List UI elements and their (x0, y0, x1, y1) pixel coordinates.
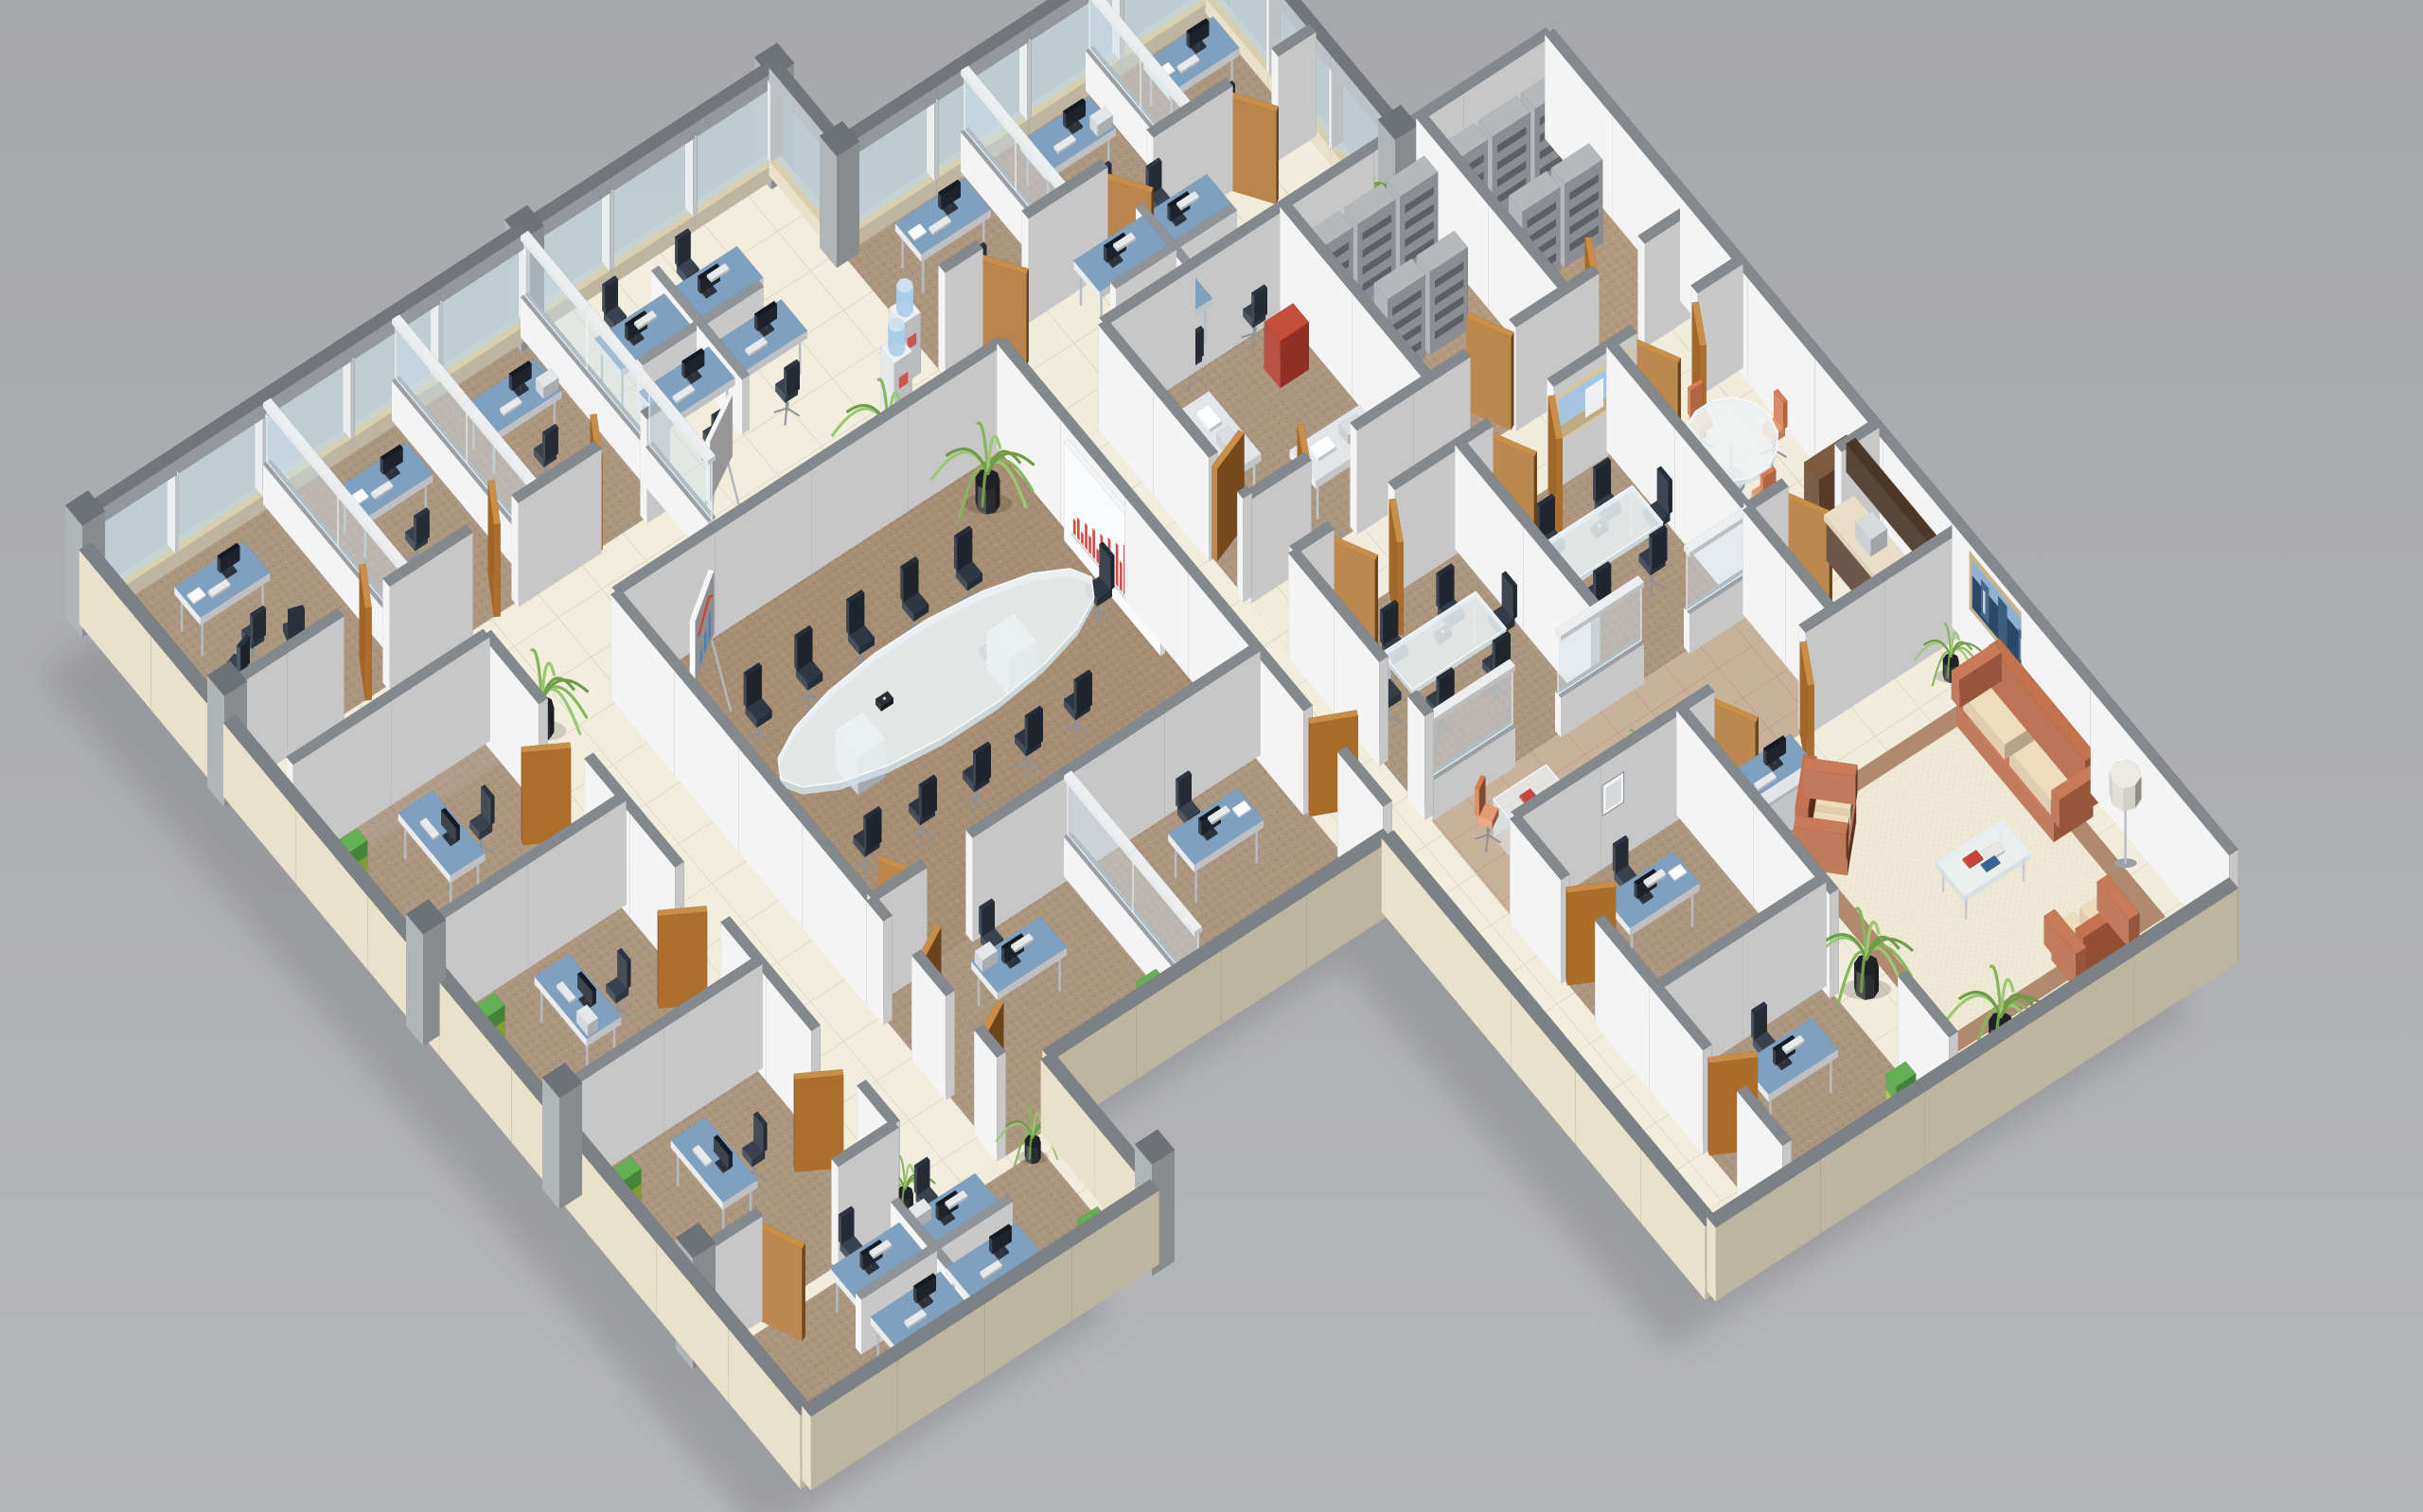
pillar (820, 121, 859, 268)
office-floorplan-3d-render (0, 0, 2423, 1512)
wall (1407, 691, 1434, 821)
pillar (542, 1063, 582, 1209)
building (42, 0, 2238, 1512)
door (759, 1222, 805, 1342)
door (1466, 313, 1513, 431)
wall (866, 895, 893, 1026)
floorplan-canvas (0, 0, 2423, 1512)
wall (1237, 486, 1252, 603)
door (1229, 92, 1279, 204)
